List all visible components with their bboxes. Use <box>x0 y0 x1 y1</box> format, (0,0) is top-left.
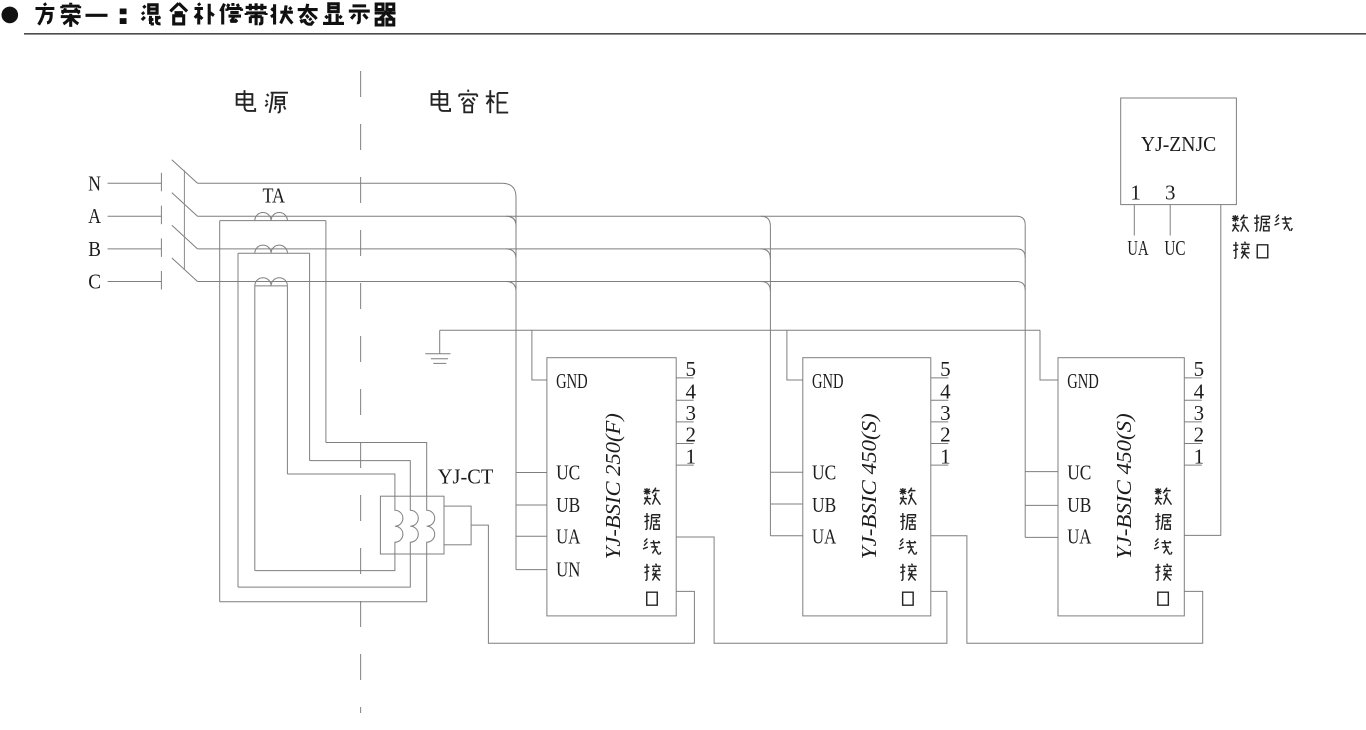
svg-text:2: 2 <box>686 423 697 447</box>
svg-text:UB: UB <box>812 493 836 517</box>
svg-text:5: 5 <box>1194 357 1205 381</box>
svg-text:5: 5 <box>686 357 697 381</box>
svg-text:UA: UA <box>1067 524 1092 548</box>
svg-text:UA: UA <box>812 524 837 548</box>
svg-text:TA: TA <box>263 183 286 207</box>
svg-text:YJ-CT: YJ-CT <box>438 465 494 489</box>
svg-text:A: A <box>88 204 101 228</box>
svg-text:UB: UB <box>556 493 580 517</box>
svg-text:UA: UA <box>556 524 581 548</box>
svg-text:4: 4 <box>940 380 951 404</box>
svg-text:N: N <box>88 171 101 195</box>
svg-text:4: 4 <box>686 380 697 404</box>
svg-text:3: 3 <box>686 401 697 425</box>
svg-text:3: 3 <box>1165 181 1176 205</box>
svg-text:1: 1 <box>1194 444 1205 468</box>
svg-text:1: 1 <box>940 444 951 468</box>
svg-text:2: 2 <box>940 423 951 447</box>
svg-text:5: 5 <box>940 357 951 381</box>
svg-text:UN: UN <box>556 558 580 582</box>
svg-text:3: 3 <box>940 401 951 425</box>
svg-text:GND: GND <box>556 369 588 393</box>
svg-text:1: 1 <box>686 444 697 468</box>
svg-text:UC: UC <box>1067 461 1091 485</box>
svg-text:B: B <box>88 237 101 261</box>
svg-text:2: 2 <box>1194 423 1205 447</box>
svg-text:UC: UC <box>812 461 836 485</box>
svg-text:UB: UB <box>1067 493 1091 517</box>
svg-text:YJ-ZNJC: YJ-ZNJC <box>1141 132 1216 156</box>
svg-text:GND: GND <box>1067 369 1099 393</box>
svg-text:3: 3 <box>1194 401 1205 425</box>
svg-text:UA: UA <box>1127 236 1149 260</box>
svg-text:1: 1 <box>1130 181 1141 205</box>
svg-text:YJ-BSIC 450(S): YJ-BSIC 450(S) <box>1112 413 1136 559</box>
svg-text:UC: UC <box>1164 236 1185 260</box>
svg-text:C: C <box>88 270 101 294</box>
svg-text:GND: GND <box>812 369 844 393</box>
svg-text:UC: UC <box>556 461 580 485</box>
svg-text:YJ-BSIC 450(S): YJ-BSIC 450(S) <box>857 413 881 559</box>
svg-text:4: 4 <box>1194 380 1205 404</box>
svg-text:YJ-BSIC 250(F): YJ-BSIC 250(F) <box>601 413 625 559</box>
